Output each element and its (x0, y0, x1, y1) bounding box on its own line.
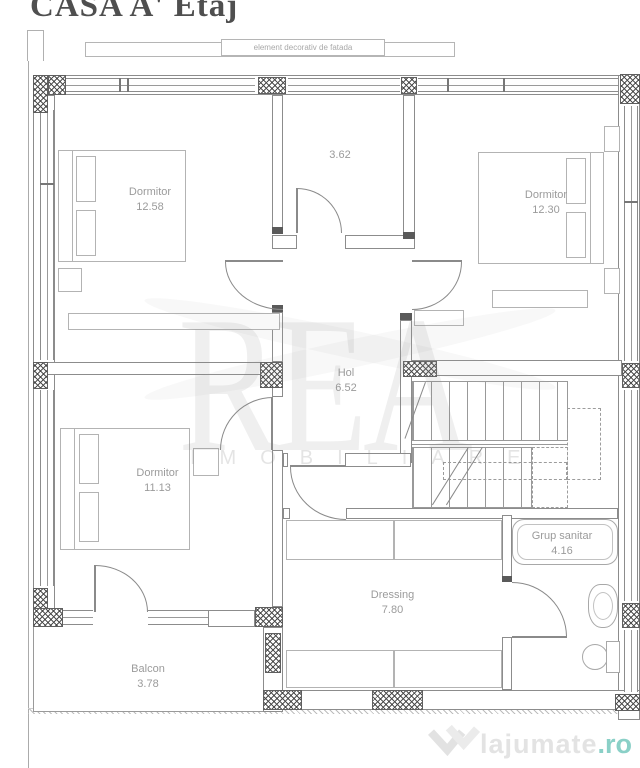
room-area: 4.16 (512, 544, 612, 559)
room-label-balcon: Balcon 3.78 (95, 662, 201, 692)
bed-headboard (60, 428, 75, 550)
door-arc-bathroom (512, 582, 567, 637)
wall-south (283, 690, 640, 710)
toilet-bowl (582, 644, 608, 670)
sink-basin (593, 592, 613, 620)
pier-sw-corner (33, 608, 63, 627)
room-name: Balcon (95, 662, 201, 677)
window-east-upper (624, 106, 638, 361)
room-area: 7.80 (340, 603, 445, 618)
toilet-tank (606, 641, 620, 673)
bench (492, 290, 588, 308)
room-label-3-62: 3.62 (300, 148, 380, 163)
wardrobe (394, 650, 502, 688)
wall-stairwell-south (346, 508, 618, 519)
pier-west-mid (33, 362, 48, 389)
wall-vestibule-right (403, 95, 415, 238)
watermark-subtitle: IMOBILIARE (190, 447, 610, 470)
wall-stairwell-south-stub (283, 508, 290, 519)
room-name: Dormitor (75, 185, 225, 200)
logo-name-text: lajumate (480, 729, 598, 760)
wall-vestibule-left (272, 95, 283, 233)
logo-tld-text: .ro (598, 729, 633, 760)
pier-east-low (622, 603, 640, 628)
pillow (79, 492, 99, 542)
wardrobe (394, 520, 502, 560)
nightstand (604, 126, 620, 152)
room-name: Dormitor (480, 188, 612, 203)
room-label-dormitor2: Dormitor 12.30 (480, 188, 612, 218)
window-north-center (288, 78, 400, 92)
pier-balcony-top (255, 607, 283, 627)
boundary-corner-mark (27, 30, 44, 61)
window-tick (447, 78, 449, 92)
window-east-lower (624, 630, 638, 692)
door-arc-vestibule (297, 188, 342, 233)
window-balcony-left (58, 610, 93, 625)
window-tick (119, 78, 121, 92)
pillow (76, 210, 96, 256)
room-area: 12.58 (75, 200, 225, 215)
room-name: Grup sanitar (512, 529, 612, 544)
door-jamb (502, 576, 512, 582)
window-tick (40, 183, 54, 185)
pier-west-low (33, 588, 48, 609)
room-name: Dressing (340, 588, 445, 603)
lajumate-logo-icon (428, 721, 480, 767)
floor-plan: CASA A' Etaj element decorativ de fatada (0, 0, 640, 768)
door-jamb (272, 227, 283, 234)
wardrobe (286, 650, 394, 688)
room-label-grup-sanitar: Grup sanitar 4.16 (512, 529, 612, 559)
window-tick (503, 78, 505, 92)
facade-note-label: element decorativ de fatada (221, 39, 385, 56)
pier-south-1 (263, 690, 302, 710)
wall-balcony-segment (208, 610, 255, 627)
room-label-dressing: Dressing 7.80 (340, 588, 445, 618)
nightstand (604, 268, 620, 294)
pier-nw-horizontal (48, 75, 66, 95)
pillow (566, 212, 586, 258)
pier-north-1 (258, 77, 286, 94)
nightstand (58, 268, 82, 292)
pier-south-2 (372, 690, 423, 710)
wall-bathroom-left-lower (502, 637, 512, 690)
pier-balcony-wall (265, 633, 281, 673)
boundary-line-left (28, 30, 29, 768)
room-area: 3.78 (95, 677, 201, 692)
pier-ne-corner (620, 74, 640, 104)
door-arc-balcony (95, 565, 148, 612)
window-tick (127, 78, 129, 92)
room-area: 12.30 (480, 203, 612, 218)
pier-se-corner (615, 694, 640, 711)
pier-east-mid (622, 363, 640, 388)
room-area: 3.62 (300, 148, 380, 163)
wall-bathroom-left-upper (502, 515, 512, 582)
window-tick (624, 201, 638, 203)
bed-headboard (58, 150, 73, 262)
pier-north-2 (401, 77, 417, 94)
pier-nw-vertical (33, 75, 48, 113)
window-balcony-right (148, 610, 208, 625)
window-east-middle (624, 390, 638, 601)
window-west-upper (40, 110, 54, 360)
door-jamb (403, 232, 415, 239)
page-title: CASA A' Etaj (30, 0, 238, 25)
window-north-left (65, 78, 255, 92)
site-logo: lajumate.ro (428, 720, 640, 768)
wall-under-vestibule-left (272, 235, 297, 249)
window-west-lower (40, 390, 54, 586)
room-label-dormitor1: Dormitor 12.58 (75, 185, 225, 215)
wardrobe (286, 520, 394, 560)
